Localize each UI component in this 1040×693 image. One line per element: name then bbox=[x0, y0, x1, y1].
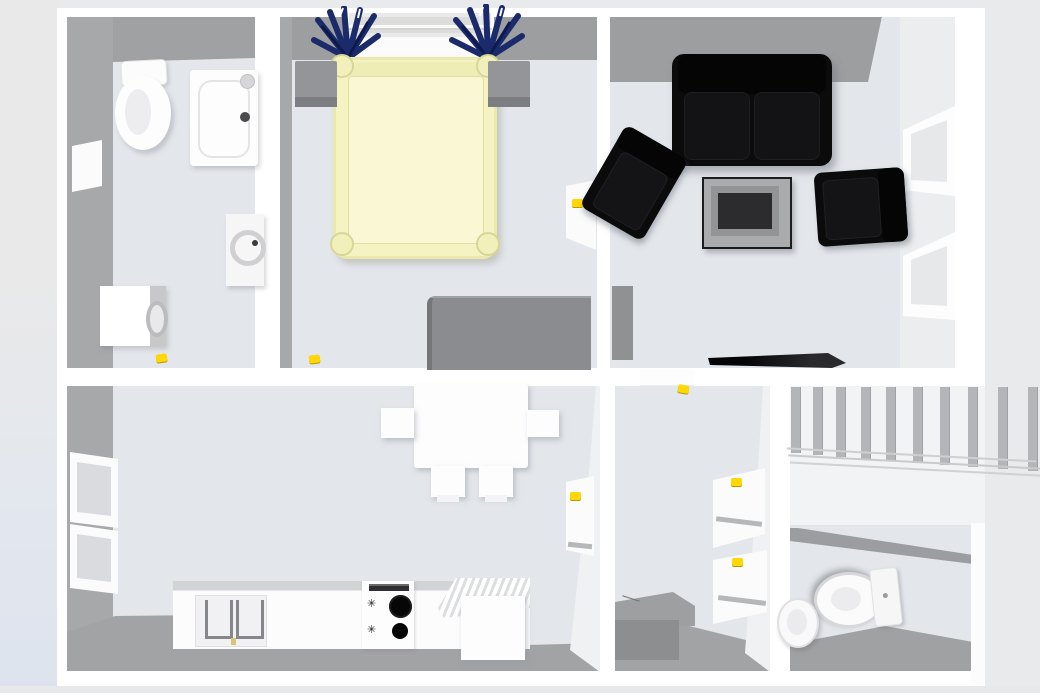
kitchen-window-1[interactable] bbox=[70, 452, 118, 528]
sofa-backrest bbox=[678, 54, 826, 94]
living-window-2-glass bbox=[911, 246, 947, 310]
kitchen-window-2[interactable] bbox=[70, 524, 118, 594]
sink-tap-dot bbox=[231, 638, 236, 645]
wc-toilet-seat-hole bbox=[831, 587, 861, 611]
background-bottom-strip bbox=[0, 686, 1040, 693]
sofa[interactable] bbox=[672, 54, 832, 166]
stove-knob-glyph-2: ✳ bbox=[367, 623, 376, 636]
stove-knob-glyph-1: ✳ bbox=[367, 597, 376, 610]
bathroom-left-door[interactable] bbox=[72, 140, 102, 192]
hallway-top-door[interactable] bbox=[640, 369, 694, 386]
bed-mattress bbox=[348, 76, 484, 244]
coffee-table-top bbox=[718, 193, 772, 229]
kitchen-right-door[interactable] bbox=[566, 476, 594, 564]
toilet-bowl[interactable] bbox=[115, 76, 171, 150]
nightstand-left[interactable] bbox=[295, 61, 337, 107]
dining-chair-left[interactable] bbox=[381, 408, 414, 438]
dining-chair-right[interactable] bbox=[527, 410, 559, 437]
stove-burner-large bbox=[389, 595, 412, 618]
hallway-door-1-handle[interactable] bbox=[731, 478, 742, 486]
toilet-seat-hole bbox=[125, 89, 151, 135]
hallway-bench-front bbox=[615, 620, 679, 660]
sink-basin-left bbox=[205, 600, 233, 639]
bed-post-bottom-left bbox=[330, 232, 354, 256]
kitchen-window-1-glass bbox=[77, 462, 111, 516]
wall-cabinet[interactable] bbox=[226, 214, 264, 286]
wall-kitchen-hallway bbox=[600, 385, 615, 672]
wall-cabinet-dot bbox=[252, 240, 258, 246]
nightstand-right[interactable] bbox=[488, 61, 530, 107]
shower-drain bbox=[240, 112, 250, 122]
stove[interactable]: ✳ ✳ bbox=[362, 581, 414, 649]
armchair-right-cushion bbox=[822, 177, 882, 241]
coffee-table[interactable] bbox=[702, 177, 792, 249]
bathroom-door-handle[interactable] bbox=[155, 353, 167, 362]
sofa-cushion-right bbox=[754, 92, 820, 160]
hallway-door-2-handle[interactable] bbox=[732, 558, 743, 566]
wc-tank-button bbox=[883, 593, 888, 598]
chair-legs bbox=[485, 495, 507, 502]
shower-knob bbox=[240, 74, 255, 89]
dresser[interactable] bbox=[427, 296, 591, 370]
wc-sink[interactable] bbox=[777, 598, 819, 648]
dining-chair-bottom-1[interactable] bbox=[431, 466, 465, 497]
stove-burner-small bbox=[392, 623, 408, 639]
kitchen-door-handle[interactable] bbox=[570, 492, 581, 500]
wc-toilet-tank[interactable] bbox=[869, 567, 903, 628]
base-cabinet[interactable] bbox=[461, 596, 525, 660]
dining-chair-bottom-2[interactable] bbox=[479, 466, 513, 497]
wc-sink-basin bbox=[787, 609, 807, 635]
sofa-cushion-left bbox=[684, 92, 750, 160]
wall-right-exterior-upper bbox=[955, 8, 985, 385]
hallway-top-door-handle[interactable] bbox=[677, 384, 689, 394]
nightstand-left-front bbox=[295, 97, 337, 107]
washing-machine[interactable] bbox=[100, 286, 166, 346]
wall-wc-right bbox=[971, 523, 985, 685]
armchair-right-backrest bbox=[877, 167, 908, 243]
floor-plan-3d-view[interactable]: ✳ ✳ bbox=[0, 0, 1040, 693]
wall-cabinet-ring bbox=[230, 230, 266, 266]
dining-table[interactable] bbox=[414, 384, 528, 468]
washing-machine-porthole bbox=[146, 301, 168, 337]
bedroom-bottom-door-handle[interactable] bbox=[309, 354, 321, 363]
chair-legs bbox=[437, 495, 459, 502]
sink-unit[interactable] bbox=[195, 595, 267, 647]
bed-headboard bbox=[342, 62, 488, 76]
wall-bottom-exterior bbox=[57, 671, 985, 686]
wall-left-exterior bbox=[57, 8, 67, 686]
living-window-1-glass bbox=[911, 120, 947, 186]
shower-tray[interactable] bbox=[190, 70, 258, 166]
wall-bathroom-bedroom bbox=[255, 8, 280, 368]
nightstand-right-front bbox=[488, 97, 530, 107]
radiator[interactable] bbox=[612, 286, 633, 360]
sink-basin-right bbox=[236, 600, 264, 639]
bed-post-bottom-right bbox=[476, 232, 500, 256]
double-bed[interactable] bbox=[333, 57, 497, 259]
kitchen-window-2-glass bbox=[77, 534, 111, 582]
armchair-right[interactable] bbox=[814, 167, 909, 247]
bedroom-left-wall-face bbox=[278, 16, 292, 368]
stove-control-strip bbox=[369, 584, 409, 591]
background-left-strip bbox=[0, 0, 57, 693]
